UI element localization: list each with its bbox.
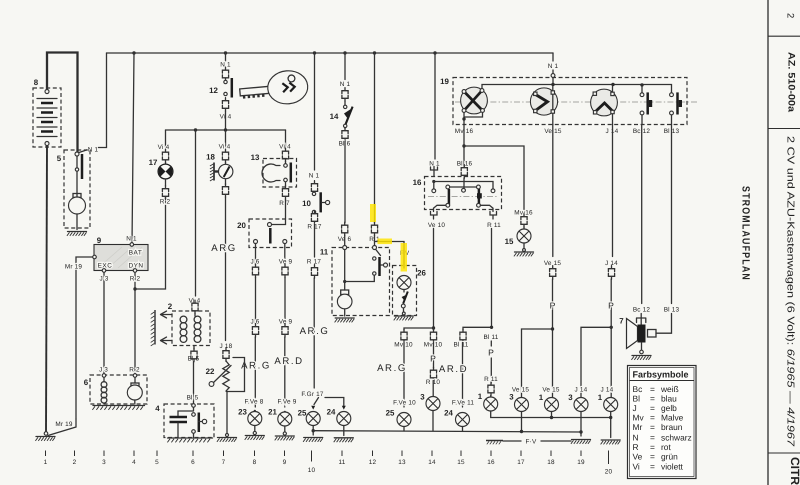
svg-text:4: 4 (155, 404, 160, 413)
svg-text:R 2: R 2 (129, 367, 140, 374)
svg-text:weiß: weiß (660, 384, 679, 394)
svg-text:=: = (650, 422, 655, 432)
svg-text:10: 10 (308, 467, 316, 474)
svg-text:F.Ve 8: F.Ve 8 (245, 399, 264, 406)
svg-text:2: 2 (73, 459, 77, 466)
svg-text:=: = (650, 403, 655, 413)
svg-text:AR.D: AR.D (274, 356, 303, 367)
svg-text:12: 12 (209, 86, 218, 95)
svg-text:R 11: R 11 (487, 222, 501, 229)
svg-text:Vi: Vi (633, 462, 640, 472)
svg-text:1: 1 (478, 392, 483, 401)
svg-text:=: = (650, 413, 655, 423)
svg-text:8: 8 (253, 459, 257, 466)
svg-text:R 2: R 2 (130, 276, 141, 283)
svg-text:blau: blau (661, 393, 677, 403)
svg-text:24: 24 (327, 408, 336, 417)
svg-text:10: 10 (302, 199, 311, 208)
svg-text:CITR: CITR (788, 457, 800, 485)
svg-text:7: 7 (222, 459, 226, 466)
svg-text:J 3: J 3 (99, 276, 108, 283)
svg-text:STROMLAUFPLAN: STROMLAUFPLAN (740, 186, 752, 281)
svg-text:N 1: N 1 (548, 63, 559, 70)
svg-text:21: 21 (268, 408, 277, 417)
svg-text:19: 19 (440, 77, 449, 86)
svg-text:11: 11 (338, 459, 345, 466)
svg-text:N 1: N 1 (340, 81, 351, 88)
svg-text:AR.D: AR.D (439, 364, 468, 375)
svg-text:8: 8 (34, 78, 39, 87)
svg-text:violett: violett (661, 462, 684, 472)
svg-text:24: 24 (444, 409, 453, 418)
svg-text:=: = (650, 393, 655, 403)
svg-text:11: 11 (320, 248, 329, 257)
svg-text:R 7: R 7 (279, 200, 290, 207)
svg-text:Mv: Mv (633, 413, 645, 423)
svg-text:1: 1 (44, 459, 48, 466)
svg-text:Ve: Ve (633, 452, 643, 462)
svg-text:23: 23 (238, 408, 247, 417)
svg-text:J 14: J 14 (601, 387, 614, 394)
svg-text:F.Ve 10: F.Ve 10 (393, 400, 416, 407)
svg-text:J: J (633, 403, 637, 413)
svg-text:15: 15 (457, 459, 465, 466)
svg-text:2: 2 (785, 13, 796, 18)
svg-text:5: 5 (57, 154, 62, 163)
svg-text:3: 3 (102, 459, 106, 466)
svg-text:F·V: F·V (526, 439, 537, 446)
svg-text:AR.G: AR.G (377, 363, 407, 374)
svg-text:14: 14 (330, 112, 339, 121)
svg-text:4: 4 (132, 459, 136, 466)
svg-text:P: P (550, 301, 556, 311)
svg-text:N: N (633, 432, 639, 442)
svg-text:Bl 11: Bl 11 (483, 334, 498, 341)
svg-text:26: 26 (417, 269, 426, 278)
svg-text:rot: rot (661, 442, 671, 452)
svg-text:Bl 11: Bl 11 (453, 342, 468, 349)
svg-text:25: 25 (298, 409, 307, 418)
svg-text:N 1: N 1 (126, 236, 137, 243)
svg-text:Bl 5: Bl 5 (187, 395, 199, 402)
svg-text:12: 12 (369, 459, 377, 466)
svg-text:Mr 19: Mr 19 (65, 264, 83, 271)
svg-text:F.Gr 17: F.Gr 17 (301, 391, 324, 398)
svg-text:19: 19 (577, 459, 585, 466)
svg-text:F.Ve 11: F.Ve 11 (452, 400, 474, 407)
svg-text:=: = (650, 432, 655, 442)
svg-text:20: 20 (605, 469, 613, 476)
svg-text:N 1: N 1 (88, 147, 99, 154)
svg-text:=: = (650, 452, 655, 462)
svg-text:Malve: Malve (661, 413, 684, 423)
svg-text:ARG: ARG (211, 243, 237, 254)
svg-text:=: = (650, 384, 655, 394)
svg-text:13: 13 (398, 459, 406, 466)
svg-text:gelb: gelb (661, 403, 677, 413)
svg-text:BAT: BAT (129, 250, 142, 257)
svg-text:Bl 13: Bl 13 (664, 307, 680, 314)
svg-text:=: = (650, 442, 655, 452)
svg-text:=: = (650, 462, 655, 472)
svg-text:P: P (488, 348, 494, 358)
svg-text:17: 17 (517, 459, 525, 466)
svg-text:Mr: Mr (633, 422, 643, 432)
svg-text:Mr 19: Mr 19 (55, 421, 73, 428)
svg-text:N 1: N 1 (309, 173, 320, 180)
svg-text:16: 16 (413, 178, 422, 187)
svg-text:25: 25 (386, 409, 395, 418)
svg-text:2 CV und AZU-Kastenwagen (6 Vo: 2 CV und AZU-Kastenwagen (6 Volt): 6/196… (785, 136, 796, 447)
svg-text:F.Ve 9: F.Ve 9 (278, 399, 297, 406)
svg-text:3: 3 (568, 393, 573, 402)
svg-text:schwarz: schwarz (661, 432, 692, 442)
svg-text:grün: grün (661, 452, 678, 462)
svg-text:braun: braun (661, 422, 683, 432)
svg-text:J 3: J 3 (99, 367, 108, 374)
svg-text:J 14: J 14 (575, 387, 588, 394)
svg-text:9: 9 (97, 236, 102, 245)
svg-text:Bc 12: Bc 12 (633, 307, 651, 314)
svg-text:Vi 4: Vi 4 (158, 144, 170, 151)
svg-text:AZ. 510-00a: AZ. 510-00a (786, 52, 797, 113)
svg-text:3: 3 (420, 393, 425, 402)
svg-text:16: 16 (487, 459, 495, 466)
svg-text:18: 18 (206, 153, 215, 162)
svg-text:5: 5 (155, 459, 159, 466)
svg-text:6: 6 (84, 378, 89, 387)
svg-text:Vi 4: Vi 4 (219, 144, 231, 151)
svg-text:AR.G: AR.G (241, 361, 271, 372)
svg-text:Bc: Bc (633, 384, 643, 394)
svg-text:9: 9 (283, 459, 287, 466)
svg-text:1: 1 (598, 393, 603, 402)
svg-text:Bl: Bl (633, 393, 641, 403)
svg-text:6: 6 (191, 459, 195, 466)
svg-text:Ve 10: Ve 10 (428, 222, 446, 229)
svg-text:2: 2 (168, 302, 173, 311)
svg-text:R: R (633, 442, 639, 452)
svg-text:7: 7 (619, 317, 624, 326)
svg-text:20: 20 (237, 221, 246, 230)
svg-text:P: P (608, 301, 614, 311)
svg-text:1: 1 (539, 393, 544, 402)
svg-text:22: 22 (206, 367, 215, 376)
svg-text:15: 15 (505, 237, 514, 246)
svg-text:Ve 15: Ve 15 (542, 387, 560, 394)
svg-text:17: 17 (149, 158, 158, 167)
svg-text:13: 13 (251, 153, 260, 162)
svg-text:3: 3 (509, 393, 514, 402)
svg-text:Ve 15: Ve 15 (512, 387, 530, 394)
svg-text:AR.G: AR.G (300, 326, 330, 337)
svg-text:18: 18 (547, 459, 555, 466)
svg-text:P: P (430, 354, 436, 364)
svg-text:Farbsymbole: Farbsymbole (633, 370, 689, 380)
svg-text:14: 14 (428, 459, 436, 466)
